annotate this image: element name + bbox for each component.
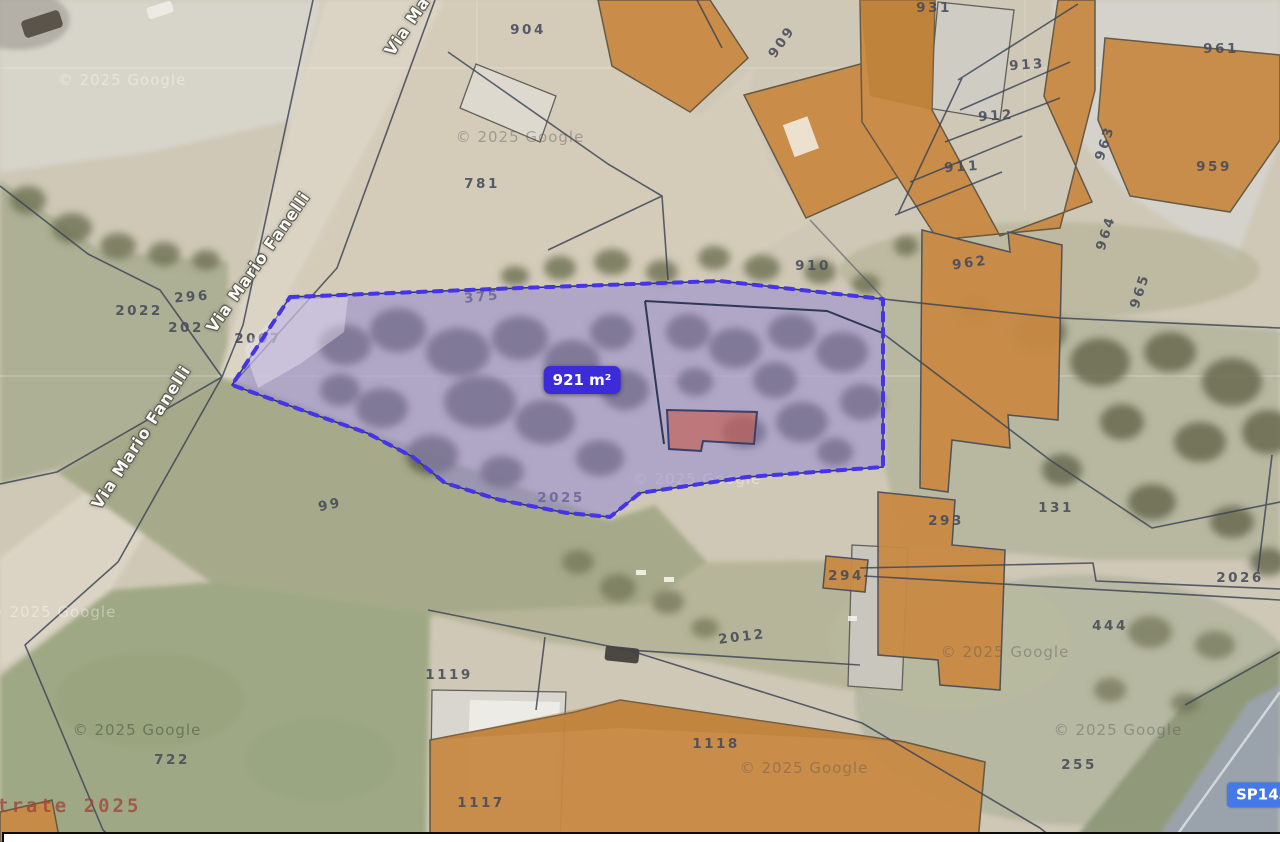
selected-parcel-overlay[interactable]	[0, 0, 1280, 842]
area-label: 921 m²	[544, 366, 621, 394]
bottom-bar	[2, 832, 1280, 842]
road-badge: SP143	[1227, 783, 1280, 808]
map-canvas[interactable]: © 2025 Google© 2025 Google© 2025 Google©…	[0, 0, 1280, 842]
